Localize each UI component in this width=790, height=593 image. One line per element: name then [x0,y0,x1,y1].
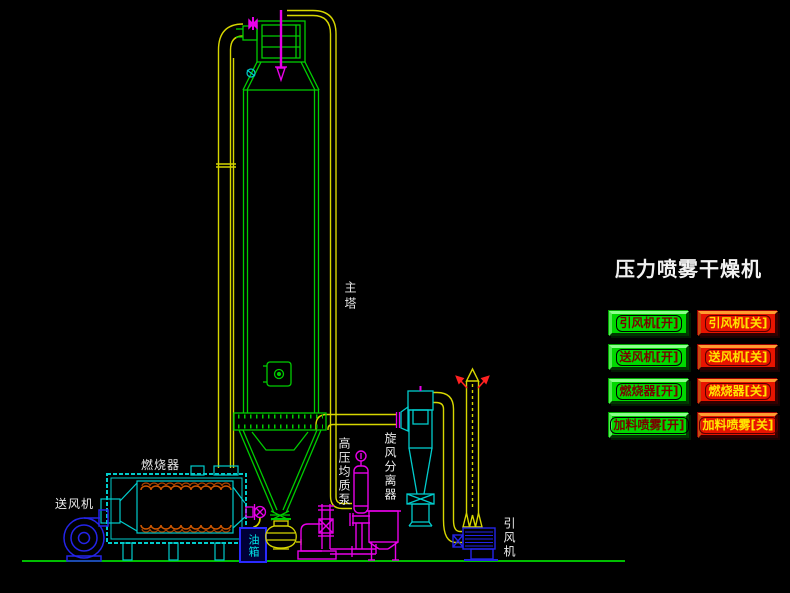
induced-fan-on-button[interactable]: 引风机[开] [609,311,689,336]
feed-spray-off-button[interactable]: 加料喷雾[关] [698,413,778,438]
tower-outlet-duct [316,415,396,431]
scada-screen: 压力喷雾干燥机 主塔 燃烧器 送风机 高压均质泵 旋风分离器 引风机 油箱 引风… [0,0,790,593]
cyclone-separator [397,386,435,526]
plant-diagram [0,0,790,593]
label-main-tower: 主塔 [343,281,356,313]
induced-fan-off-label: 引风机[关] [705,315,772,332]
feed-spray-on-label: 加料喷雾[开] [610,417,689,434]
induced-fan-on-label: 引风机[开] [616,315,683,332]
label-supply-fan: 送风机 [55,495,94,512]
label-oil-tank: 油箱 [247,534,260,558]
burner-on-label: 燃烧器[开] [616,383,683,400]
label-induced-fan: 引风机 [502,517,515,559]
label-cyclone: 旋风分离器 [383,432,396,502]
label-high-pressure-pump: 高压均质泵 [337,437,350,507]
supply-fan-off-label: 送风机[关] [705,349,772,366]
feed-spray-on-button[interactable]: 加料喷雾[开] [609,413,689,438]
burner-off-button[interactable]: 燃烧器[关] [698,379,778,404]
collector-pot [266,521,301,549]
burner-on-button[interactable]: 燃烧器[开] [609,379,689,404]
cyclone-outlet-duct [433,393,462,543]
main-tower [234,21,326,520]
burner-oil-fitting [246,504,266,520]
burner [101,466,246,560]
induced-fan [453,528,498,560]
supply-fan-on-label: 送风机[开] [616,349,683,366]
sight-glass-icon [247,69,255,77]
burner-coils [141,483,231,532]
feed-spray-off-label: 加料喷雾[关] [699,417,778,434]
supply-fan-off-button[interactable]: 送风机[关] [698,345,778,370]
induced-fan-off-button[interactable]: 引风机[关] [698,311,778,336]
burner-off-label: 燃烧器[关] [705,383,772,400]
feed-hopper [366,511,401,560]
label-burner: 燃烧器 [141,456,180,473]
supply-fan-on-button[interactable]: 送风机[开] [609,345,689,370]
hot-air-pipe [216,24,243,468]
page-title: 压力喷雾干燥机 [615,253,787,282]
exhaust-stack [463,369,482,527]
